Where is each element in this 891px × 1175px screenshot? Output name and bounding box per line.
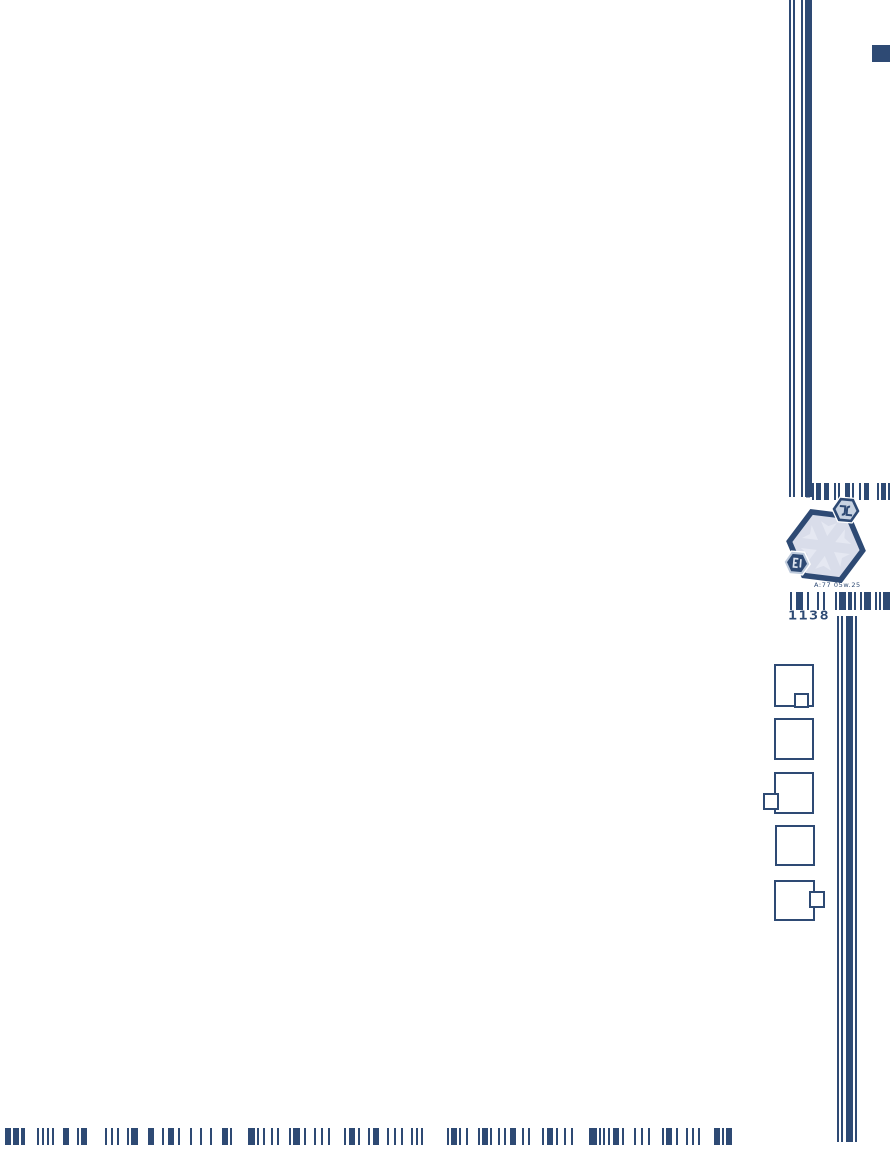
barcode-bar <box>510 1128 516 1145</box>
hexagon-logo <box>778 492 870 584</box>
barcode-bar <box>613 1128 619 1145</box>
barcode-bar <box>387 1128 389 1145</box>
barcode-bar <box>42 1128 44 1145</box>
barcode-bar <box>854 592 856 610</box>
barcode-bar <box>230 1128 232 1145</box>
barcode-bar <box>622 1128 624 1145</box>
satellite-square <box>763 793 779 810</box>
top-right-vertical-lines <box>789 0 812 497</box>
vertical-rule <box>855 616 857 1142</box>
barcode-bar <box>349 1128 355 1145</box>
barcode-bar <box>490 1128 492 1145</box>
barcode-bar <box>877 483 879 500</box>
barcode-bar <box>634 1128 636 1145</box>
vertical-rule <box>805 0 812 497</box>
barcode-bar <box>222 1128 228 1145</box>
vertical-rule <box>841 616 843 1142</box>
barcode-bar <box>117 1128 119 1145</box>
barcode-bar <box>881 483 886 500</box>
barcode-bar <box>714 1128 720 1145</box>
barcode-bar <box>504 1128 506 1145</box>
barcode-bar <box>277 1128 279 1145</box>
barcode-bar <box>248 1128 255 1145</box>
barcode-bar <box>63 1128 69 1145</box>
barcode-bottom <box>5 1128 773 1145</box>
barcode-bar <box>293 1128 300 1145</box>
barcode-bar <box>47 1128 49 1145</box>
barcode-bar <box>542 1128 544 1145</box>
satellite-square <box>809 891 825 908</box>
barcode-bar <box>257 1128 259 1145</box>
barcode-bar <box>564 1128 566 1145</box>
barcode-bar <box>168 1128 174 1145</box>
barcode-bar <box>394 1128 396 1145</box>
barcode-bar <box>321 1128 323 1145</box>
barcode-bar <box>289 1128 291 1145</box>
barcode-bar <box>37 1128 39 1145</box>
barcode-bar <box>411 1128 413 1145</box>
barcode-bar <box>864 592 871 610</box>
outline-square <box>774 772 814 814</box>
barcode-bar <box>666 1128 672 1145</box>
barcode-bar <box>200 1128 202 1145</box>
barcode-bar <box>127 1128 129 1145</box>
logo-caption: A:77 05w.25 <box>814 581 861 589</box>
vertical-rule <box>846 616 853 1142</box>
barcode-bar <box>879 592 881 610</box>
barcode-bar <box>21 1128 25 1145</box>
barcode-bar <box>603 1128 605 1145</box>
barcode-bar <box>358 1128 360 1145</box>
barcode-bar <box>648 1128 650 1145</box>
barcode-bar <box>368 1128 370 1145</box>
barcode-bar <box>528 1128 530 1145</box>
barcode-bar <box>162 1128 164 1145</box>
barcode-bar <box>111 1128 113 1145</box>
barcode-bar <box>5 1128 11 1145</box>
barcode-bar <box>178 1128 180 1145</box>
bottom-right-vertical-lines <box>837 616 857 1142</box>
barcode-bar <box>373 1128 379 1145</box>
satellite-square <box>794 693 809 708</box>
barcode-bar <box>641 1128 643 1145</box>
barcode-bar <box>692 1128 694 1145</box>
barcode-bar <box>314 1128 316 1145</box>
barcode-bar <box>547 1128 553 1145</box>
barcode-bar <box>589 1128 597 1145</box>
barcode-bar <box>210 1128 212 1145</box>
barcode-bar <box>263 1128 265 1145</box>
barcode-bar <box>459 1128 461 1145</box>
barcode-bar <box>875 592 877 610</box>
barcode-bar <box>662 1128 664 1145</box>
barcode-bar <box>482 1128 488 1145</box>
outline-square <box>775 825 815 866</box>
barcode-bar <box>726 1128 732 1145</box>
barcode-bar <box>608 1128 610 1145</box>
barcode-bar <box>722 1128 724 1145</box>
barcode-bar <box>599 1128 601 1145</box>
barcode-bar <box>888 483 890 500</box>
barcode-bar <box>447 1128 449 1145</box>
barcode-bar <box>105 1128 107 1145</box>
barcode-bar <box>835 592 837 610</box>
barcode-bar <box>686 1128 688 1145</box>
vertical-rule <box>789 0 791 497</box>
barcode-bar <box>52 1128 54 1145</box>
barcode-bar <box>883 592 890 610</box>
barcode-bar <box>344 1128 346 1145</box>
logo-code-label: 1138 <box>788 608 830 623</box>
barcode-bar <box>148 1128 154 1145</box>
barcode-bar <box>839 592 846 610</box>
barcode-bar <box>571 1128 573 1145</box>
barcode-bar <box>328 1128 330 1145</box>
vertical-rule <box>837 616 839 1142</box>
barcode-bar <box>860 592 862 610</box>
barcode-bar <box>498 1128 500 1145</box>
barcode-bar <box>401 1128 403 1145</box>
barcode-bar <box>848 592 852 610</box>
barcode-bar <box>190 1128 192 1145</box>
barcode-bar <box>271 1128 273 1145</box>
barcode-bar <box>13 1128 19 1145</box>
barcode-bar <box>304 1128 306 1145</box>
barcode-bar <box>556 1128 558 1145</box>
outline-square <box>774 718 814 760</box>
barcode-bar <box>81 1128 87 1145</box>
vertical-rule <box>793 0 795 497</box>
corner-square <box>872 45 890 62</box>
barcode-bar <box>466 1128 468 1145</box>
vertical-rule <box>801 0 803 497</box>
barcode-bar <box>416 1128 418 1145</box>
barcode-bar <box>676 1128 678 1145</box>
barcode-bar <box>77 1128 79 1145</box>
barcode-bar <box>522 1128 524 1145</box>
barcode-bar <box>451 1128 457 1145</box>
barcode-bar <box>478 1128 480 1145</box>
barcode-bar <box>421 1128 423 1145</box>
barcode-bar <box>131 1128 138 1145</box>
barcode-bar <box>698 1128 700 1145</box>
